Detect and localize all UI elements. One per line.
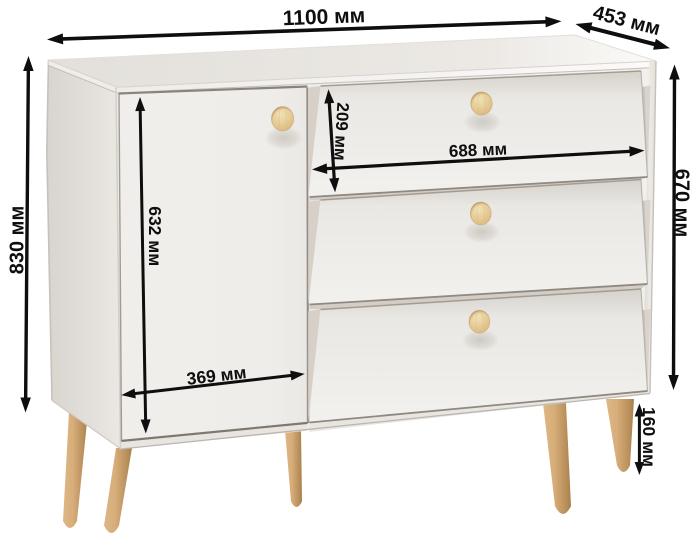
svg-text:632 мм: 632 мм [145, 206, 165, 266]
svg-text:688 мм: 688 мм [448, 139, 507, 161]
svg-text:160 мм: 160 мм [639, 407, 659, 467]
svg-text:670 мм: 670 мм [671, 169, 693, 238]
svg-text:1100 мм: 1100 мм [282, 4, 365, 30]
svg-text:830 мм: 830 мм [6, 206, 28, 275]
svg-text:209 мм: 209 мм [330, 102, 352, 161]
